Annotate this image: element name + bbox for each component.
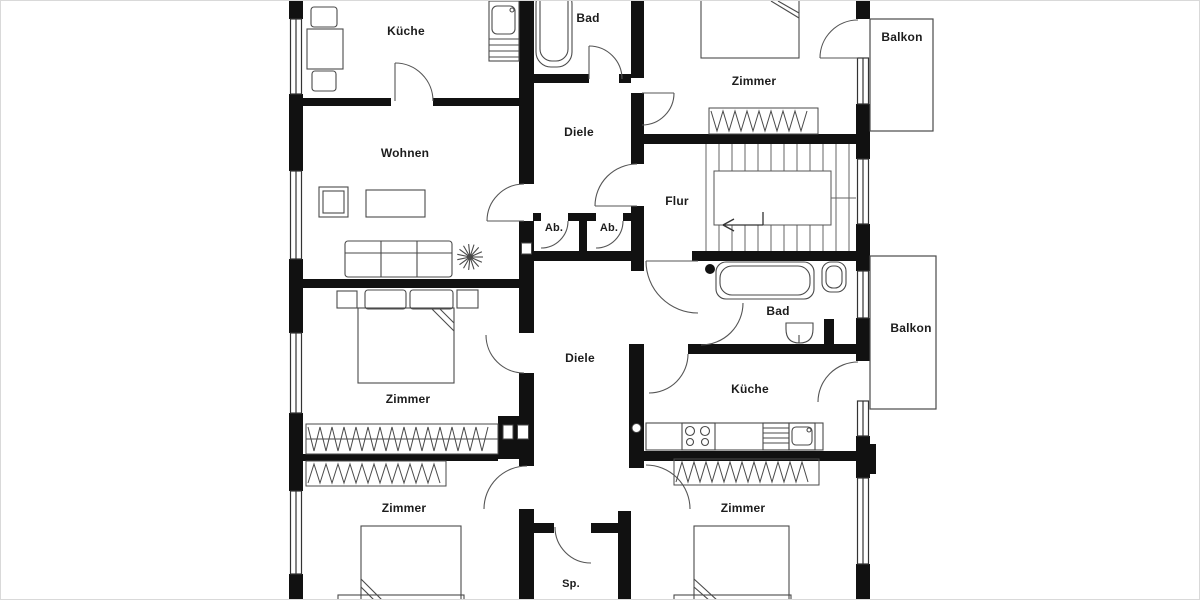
room-label-ab-right: Ab.: [600, 222, 618, 234]
bathtub-top: [536, 1, 572, 67]
room-label-ab-left: Ab.: [545, 222, 563, 234]
room-label-zimmer-top-right: Zimmer: [732, 74, 777, 88]
plant: [457, 244, 483, 270]
room-label-bad-middle: Bad: [766, 304, 789, 318]
room-label-balkon-top: Balkon: [881, 30, 922, 44]
walls: [289, 1, 876, 600]
room-label-kueche-top: Küche: [387, 24, 425, 38]
floor-plan-image: [1, 1, 1200, 600]
room-label-zimmer-bottom-right: Zimmer: [721, 501, 766, 515]
kitchen-top-sink-counter: [489, 1, 519, 61]
room-label-flur: Flur: [665, 194, 688, 208]
room-label-diele-bottom: Diele: [565, 351, 595, 365]
bed-top-right: [701, 1, 799, 58]
room-label-balkon-middle: Balkon: [890, 321, 931, 335]
room-label-speisekammer: Sp.: [562, 578, 580, 590]
room-label-zimmer-bottom-left: Zimmer: [382, 501, 427, 515]
bed-bottom-left: [338, 526, 464, 600]
room-label-wohnen: Wohnen: [381, 146, 429, 160]
room-label-diele-top: Diele: [564, 125, 594, 139]
room-label-kueche-bottom: Küche: [731, 382, 769, 396]
kitchen-bottom-counter: [646, 423, 823, 450]
bed-mid-left: [337, 290, 478, 383]
room-label-zimmer-mid-left: Zimmer: [386, 392, 431, 406]
bed-bottom-right: [674, 526, 791, 600]
room-label-bad-top: Bad: [576, 11, 599, 25]
radiators: [306, 108, 819, 486]
staircase-overlay: [714, 171, 856, 231]
living-room-furniture: [319, 187, 452, 277]
dining-table-and-chairs: [307, 7, 343, 91]
floor-plan-page: Küche Bad Zimmer Balkon Wohnen Diele Flu…: [0, 0, 1200, 600]
